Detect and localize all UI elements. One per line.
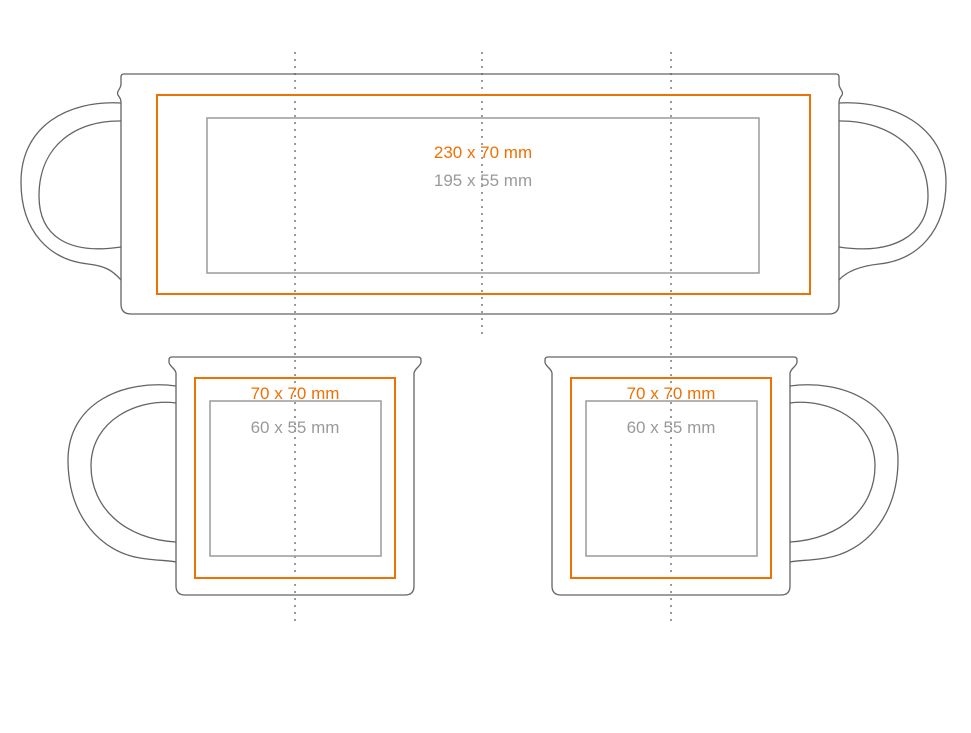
left-mug-print-area-label: 70 x 70 mm <box>251 384 340 403</box>
left-mug-print-area-rect <box>195 378 395 578</box>
right-mug-print-area-rect <box>571 378 771 578</box>
wrap-mug-body-outline <box>118 74 843 314</box>
fold-lines <box>295 52 671 622</box>
right-mug-print-area-label: 70 x 70 mm <box>627 384 716 403</box>
front-view-right-mug: 70 x 70 mm 60 x 55 mm <box>545 357 898 595</box>
wrap-mug-left-handle-outer <box>21 103 121 280</box>
left-mug-safe-area-label: 60 x 55 mm <box>251 418 340 437</box>
wrap-view: 230 x 70 mm 195 x 55 mm <box>21 74 946 314</box>
right-mug-safe-area-label: 60 x 55 mm <box>627 418 716 437</box>
right-mug-handle-outer <box>790 385 898 562</box>
left-mug-handle-outer <box>68 385 176 562</box>
wrap-mug-right-handle-outer <box>839 103 946 280</box>
diagram-svg: 230 x 70 mm 195 x 55 mm 70 x 70 mm 60 x … <box>0 0 971 733</box>
wrap-mug-left-handle-inner <box>39 121 121 249</box>
left-mug-handle-inner <box>91 402 176 542</box>
wrap-print-area-label: 230 x 70 mm <box>434 143 532 162</box>
front-view-left-mug: 70 x 70 mm 60 x 55 mm <box>68 357 421 595</box>
wrap-safe-area-label: 195 x 55 mm <box>434 171 532 190</box>
right-mug-handle-inner <box>790 402 875 542</box>
wrap-mug-right-handle-inner <box>839 121 928 249</box>
mug-print-template-diagram: 230 x 70 mm 195 x 55 mm 70 x 70 mm 60 x … <box>0 0 971 733</box>
wrap-print-area-rect <box>157 95 810 294</box>
